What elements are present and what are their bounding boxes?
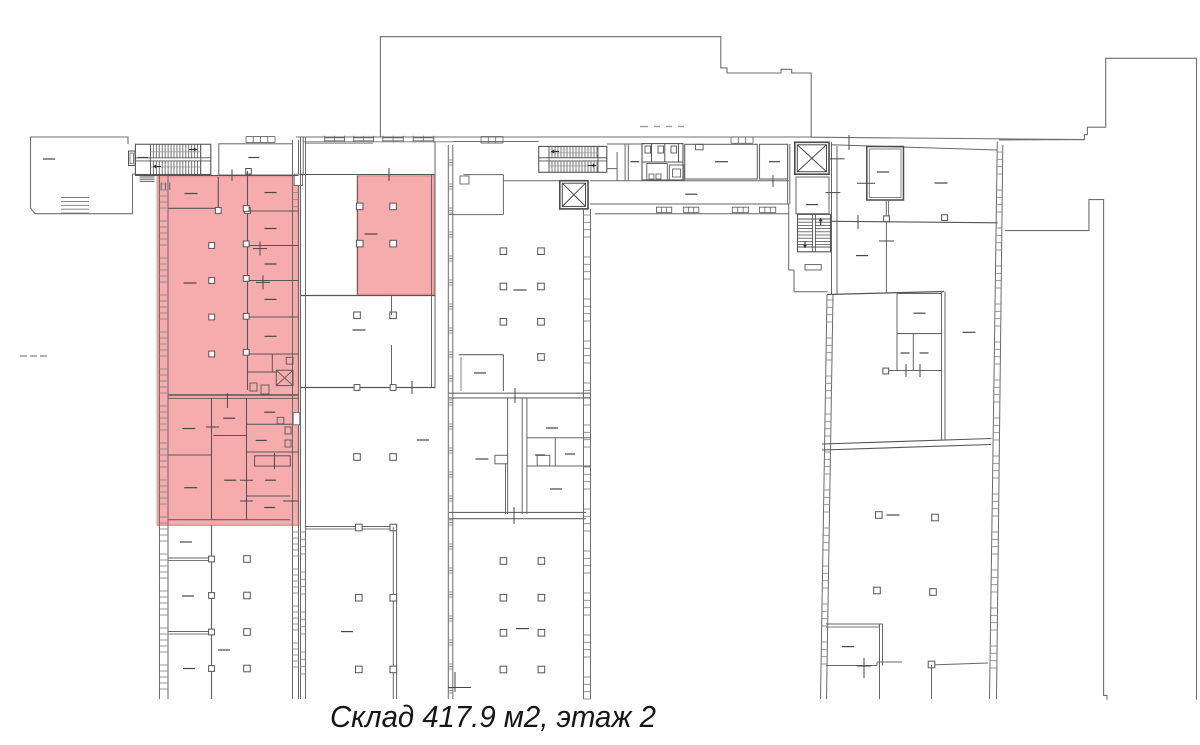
svg-text:Склад 417.9 м2, этаж 2: Склад 417.9 м2, этаж 2 xyxy=(330,699,656,734)
